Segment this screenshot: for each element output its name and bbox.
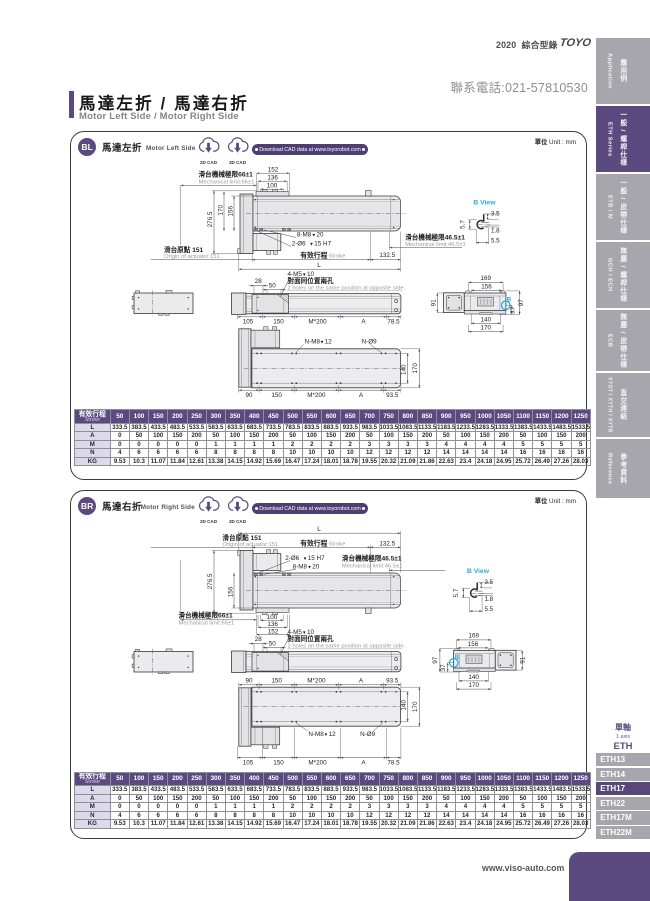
svg-text:3.5: 3.5 bbox=[485, 579, 494, 586]
svg-text:N-M8: N-M8 bbox=[308, 731, 324, 738]
svg-text:93.5: 93.5 bbox=[386, 392, 399, 399]
svg-text:▼: ▼ bbox=[302, 272, 307, 277]
svg-text:97: 97 bbox=[518, 299, 525, 307]
svg-text:4-M5: 4-M5 bbox=[288, 271, 303, 278]
svg-text:78.5: 78.5 bbox=[387, 318, 400, 325]
svg-text:100: 100 bbox=[267, 183, 278, 190]
svg-text:▼: ▼ bbox=[307, 564, 312, 569]
svg-text:滑台原點 151: 滑台原點 151 bbox=[222, 533, 262, 542]
svg-text:276.5: 276.5 bbox=[207, 573, 214, 589]
svg-text:132.5: 132.5 bbox=[379, 252, 395, 259]
svg-text:150: 150 bbox=[273, 318, 284, 325]
svg-text:2 holes on the same position a: 2 holes on the same position at opposite… bbox=[288, 285, 406, 291]
svg-text:A: A bbox=[361, 318, 366, 325]
svg-text:91: 91 bbox=[519, 656, 526, 664]
svg-text:156: 156 bbox=[227, 205, 234, 216]
svg-text:150: 150 bbox=[271, 678, 282, 685]
svg-text:B View: B View bbox=[467, 568, 490, 575]
svg-text:136: 136 bbox=[267, 621, 278, 628]
svg-text:Origin of actuator:151: Origin of actuator:151 bbox=[164, 254, 220, 260]
svg-text:97: 97 bbox=[432, 656, 439, 664]
svg-text:滑台機械極限66±1: 滑台機械極限66±1 bbox=[179, 611, 234, 620]
svg-text:Origin of actuator:151: Origin of actuator:151 bbox=[222, 542, 278, 548]
svg-text:5.5: 5.5 bbox=[485, 606, 494, 613]
svg-text:170: 170 bbox=[412, 363, 419, 374]
svg-text:132.5: 132.5 bbox=[379, 540, 395, 547]
svg-text:156: 156 bbox=[481, 284, 492, 291]
svg-text:12: 12 bbox=[325, 338, 333, 345]
svg-text:156: 156 bbox=[468, 641, 479, 648]
svg-text:28: 28 bbox=[255, 278, 263, 285]
svg-text:B View: B View bbox=[473, 199, 496, 206]
svg-text:Mechanical limit:46.5±1: Mechanical limit:46.5±1 bbox=[405, 242, 466, 248]
svg-text:170: 170 bbox=[481, 325, 492, 332]
svg-text:91: 91 bbox=[431, 299, 438, 307]
svg-text:170: 170 bbox=[468, 682, 479, 689]
svg-text:M*200: M*200 bbox=[307, 392, 326, 399]
svg-text:L: L bbox=[317, 262, 321, 269]
svg-text:12: 12 bbox=[329, 731, 337, 738]
svg-text:A: A bbox=[361, 759, 366, 766]
svg-text:8-M8: 8-M8 bbox=[297, 232, 312, 239]
svg-text:140: 140 bbox=[468, 674, 479, 681]
svg-text:M*200: M*200 bbox=[308, 759, 327, 766]
svg-text:28: 28 bbox=[255, 636, 263, 643]
svg-text:50: 50 bbox=[269, 641, 277, 648]
svg-text:5.7: 5.7 bbox=[453, 588, 460, 597]
svg-text:滑台機械極限66±1: 滑台機械極限66±1 bbox=[199, 169, 254, 178]
svg-text:2 holes on the same position a: 2 holes on the same position at opposite… bbox=[288, 643, 406, 649]
svg-text:2-Ø6: 2-Ø6 bbox=[292, 241, 306, 248]
svg-text:對面同位置兩孔: 對面同位置兩孔 bbox=[288, 276, 335, 285]
svg-text:136: 136 bbox=[267, 175, 278, 182]
svg-text:4-M5: 4-M5 bbox=[288, 629, 303, 636]
svg-text:▼: ▼ bbox=[324, 732, 329, 737]
svg-text:▼: ▼ bbox=[312, 233, 317, 238]
svg-text:對面同位置兩孔: 對面同位置兩孔 bbox=[288, 634, 335, 643]
svg-text:140: 140 bbox=[481, 316, 492, 323]
svg-text:A: A bbox=[359, 678, 364, 685]
svg-text:▼: ▼ bbox=[302, 630, 307, 635]
svg-text:Mechanical limit:66±1: Mechanical limit:66±1 bbox=[179, 621, 235, 627]
svg-text:Mechanical limit:46.5±1: Mechanical limit:46.5±1 bbox=[342, 563, 403, 569]
svg-text:93.5: 93.5 bbox=[386, 678, 399, 685]
svg-text:156: 156 bbox=[227, 586, 234, 597]
svg-text:170: 170 bbox=[217, 204, 224, 215]
svg-text:170: 170 bbox=[412, 701, 419, 712]
svg-text:15 H7: 15 H7 bbox=[314, 241, 331, 248]
svg-text:3.5: 3.5 bbox=[491, 211, 500, 218]
svg-text:B: B bbox=[507, 296, 512, 303]
svg-text:105: 105 bbox=[243, 759, 254, 766]
svg-text:37: 37 bbox=[510, 306, 517, 314]
svg-text:▼: ▼ bbox=[303, 556, 308, 561]
svg-text:滑台原點 151: 滑台原點 151 bbox=[164, 245, 204, 254]
svg-text:滑台機械極限46.5±1: 滑台機械極限46.5±1 bbox=[405, 233, 465, 242]
svg-text:Stroke: Stroke bbox=[329, 253, 346, 259]
svg-text:L: L bbox=[317, 526, 321, 533]
svg-text:50: 50 bbox=[269, 283, 277, 290]
svg-text:20: 20 bbox=[317, 232, 325, 239]
svg-text:有效行程: 有效行程 bbox=[300, 539, 327, 548]
svg-text:M*200: M*200 bbox=[308, 318, 327, 325]
svg-text:▼: ▼ bbox=[320, 339, 325, 344]
svg-text:150: 150 bbox=[273, 759, 284, 766]
svg-text:105: 105 bbox=[243, 318, 254, 325]
svg-text:276.5: 276.5 bbox=[207, 211, 214, 227]
svg-text:A: A bbox=[359, 392, 364, 399]
svg-text:M*200: M*200 bbox=[307, 678, 326, 685]
svg-text:5.5: 5.5 bbox=[491, 237, 500, 244]
svg-text:140: 140 bbox=[400, 364, 407, 375]
svg-text:20: 20 bbox=[312, 563, 320, 570]
svg-text:1.8: 1.8 bbox=[491, 227, 500, 234]
svg-text:90: 90 bbox=[245, 678, 253, 685]
svg-text:N-M8: N-M8 bbox=[305, 338, 321, 345]
svg-text:90: 90 bbox=[245, 392, 253, 399]
svg-text:140: 140 bbox=[400, 700, 407, 711]
svg-text:1.8: 1.8 bbox=[485, 596, 494, 603]
svg-text:152: 152 bbox=[268, 167, 279, 174]
svg-text:有效行程: 有效行程 bbox=[300, 250, 327, 259]
svg-text:78.5: 78.5 bbox=[387, 759, 400, 766]
svg-text:169: 169 bbox=[468, 633, 479, 640]
svg-text:5.7: 5.7 bbox=[460, 220, 467, 229]
svg-text:10: 10 bbox=[307, 629, 315, 636]
svg-text:B: B bbox=[455, 654, 460, 661]
svg-text:Mechanical limit:66±1: Mechanical limit:66±1 bbox=[199, 180, 255, 186]
svg-text:10: 10 bbox=[307, 271, 315, 278]
svg-text:15 H7: 15 H7 bbox=[308, 555, 325, 562]
svg-text:37: 37 bbox=[440, 664, 447, 672]
svg-text:150: 150 bbox=[271, 392, 282, 399]
svg-text:滑台機械極限46.5±1: 滑台機械極限46.5±1 bbox=[342, 554, 402, 563]
svg-text:▼: ▼ bbox=[309, 242, 314, 247]
svg-text:152: 152 bbox=[268, 628, 279, 635]
svg-text:N-Ø9: N-Ø9 bbox=[360, 731, 376, 738]
svg-text:Stroke: Stroke bbox=[329, 542, 346, 548]
svg-text:100: 100 bbox=[267, 614, 278, 621]
svg-text:N-Ø9: N-Ø9 bbox=[362, 338, 378, 345]
svg-text:2-Ø6: 2-Ø6 bbox=[285, 555, 299, 562]
svg-text:169: 169 bbox=[481, 275, 492, 282]
